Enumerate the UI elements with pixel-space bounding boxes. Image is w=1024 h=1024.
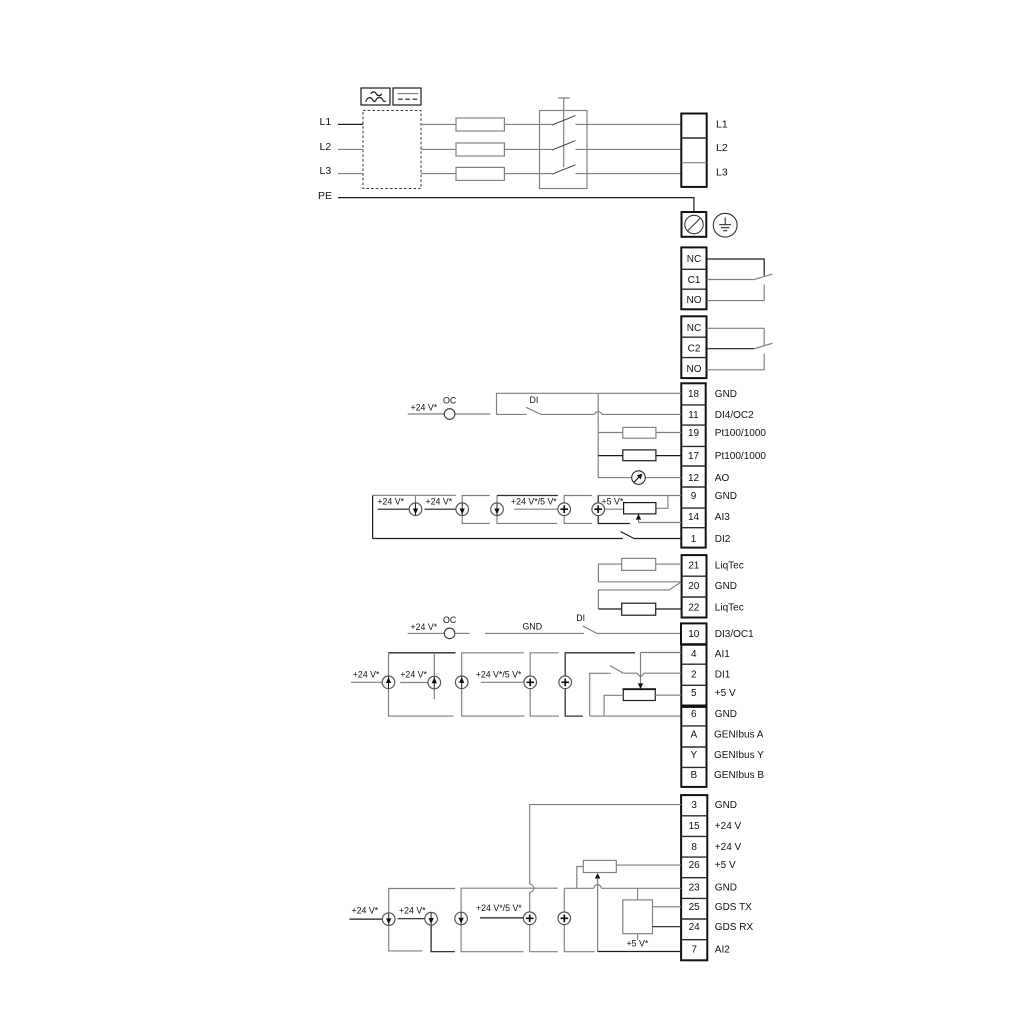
svg-text:+5 V: +5 V [715, 860, 736, 871]
svg-text:21: 21 [688, 560, 700, 571]
svg-text:GND: GND [715, 491, 737, 502]
svg-text:DI4/OC2: DI4/OC2 [715, 410, 754, 421]
svg-text:GDS TX: GDS TX [715, 902, 752, 913]
svg-text:GND: GND [715, 882, 737, 893]
svg-text:+5 V*: +5 V* [627, 939, 649, 949]
svg-text:+24 V: +24 V [715, 821, 742, 832]
svg-text:GENIbus Y: GENIbus Y [714, 750, 764, 761]
svg-text:+24 V*: +24 V* [411, 403, 438, 413]
svg-text:+24 V*/5 V*: +24 V*/5 V* [476, 903, 522, 913]
svg-text:GND: GND [523, 622, 543, 632]
svg-text:11: 11 [688, 410, 699, 421]
svg-text:AI1: AI1 [715, 649, 730, 660]
svg-text:LiqTec: LiqTec [715, 603, 744, 614]
svg-text:AI2: AI2 [715, 945, 730, 956]
svg-text:24: 24 [689, 922, 701, 933]
svg-text:DI: DI [530, 395, 539, 405]
svg-text:GENIbus B: GENIbus B [714, 770, 764, 781]
svg-text:1: 1 [691, 534, 697, 545]
svg-text:14: 14 [688, 512, 700, 523]
svg-text:GND: GND [715, 709, 737, 720]
svg-text:25: 25 [689, 902, 701, 913]
svg-text:4: 4 [691, 649, 697, 660]
svg-text:+24 V*: +24 V* [399, 906, 426, 916]
svg-text:GND: GND [715, 389, 737, 400]
svg-text:+5 V: +5 V [715, 688, 736, 699]
svg-text:B: B [690, 770, 697, 781]
svg-text:+24 V*: +24 V* [400, 670, 427, 680]
svg-text:19: 19 [688, 428, 700, 439]
svg-text:Pt100/1000: Pt100/1000 [715, 428, 767, 439]
svg-text:+24 V: +24 V [715, 842, 742, 853]
svg-text:AI3: AI3 [715, 512, 730, 523]
svg-text:Pt100/1000: Pt100/1000 [715, 451, 767, 462]
svg-text:26: 26 [689, 860, 701, 871]
svg-text:DI3/OC1: DI3/OC1 [715, 629, 754, 640]
svg-text:23: 23 [689, 882, 701, 893]
svg-text:+5 V*: +5 V* [602, 496, 624, 506]
svg-text:15: 15 [689, 821, 701, 832]
svg-text:DI1: DI1 [715, 669, 731, 680]
svg-text:DI: DI [576, 613, 585, 623]
svg-text:LiqTec: LiqTec [715, 560, 744, 571]
svg-text:3: 3 [691, 800, 697, 811]
svg-text:5: 5 [691, 688, 697, 699]
svg-text:+24 V*/5 V*: +24 V*/5 V* [511, 496, 557, 506]
svg-text:A: A [690, 729, 697, 740]
svg-text:17: 17 [688, 451, 700, 462]
svg-text:GND: GND [715, 581, 737, 592]
svg-text:OC: OC [443, 615, 457, 625]
svg-text:L2: L2 [716, 142, 728, 154]
svg-text:NO: NO [687, 364, 702, 375]
svg-text:NO: NO [687, 295, 702, 306]
svg-text:GDS RX: GDS RX [715, 922, 754, 933]
svg-text:22: 22 [688, 603, 700, 614]
svg-text:6: 6 [691, 709, 697, 720]
svg-text:+24 V*: +24 V* [426, 496, 453, 506]
svg-text:GENIbus A: GENIbus A [714, 729, 764, 740]
svg-text:GND: GND [715, 800, 737, 811]
svg-text:10: 10 [688, 629, 700, 640]
svg-text:12: 12 [688, 473, 700, 484]
svg-text:+24 V*: +24 V* [411, 622, 438, 632]
svg-text:+24 V*: +24 V* [377, 496, 404, 506]
svg-text:PE: PE [318, 190, 332, 202]
svg-text:20: 20 [688, 581, 700, 592]
svg-text:NC: NC [687, 323, 701, 334]
svg-text:L3: L3 [320, 165, 332, 177]
svg-text:L1: L1 [320, 116, 332, 128]
svg-text:+24 V*: +24 V* [353, 670, 380, 680]
svg-text:C2: C2 [688, 344, 701, 355]
svg-text:9: 9 [691, 491, 697, 502]
svg-text:Y: Y [690, 750, 697, 761]
svg-text:L1: L1 [716, 119, 728, 131]
svg-text:18: 18 [688, 389, 700, 400]
svg-text:NC: NC [687, 254, 701, 265]
svg-text:L3: L3 [716, 166, 728, 178]
svg-text:C1: C1 [688, 275, 701, 286]
svg-text:8: 8 [691, 842, 697, 853]
svg-text:7: 7 [691, 945, 697, 956]
svg-text:2: 2 [691, 669, 697, 680]
svg-text:DI2: DI2 [715, 534, 731, 545]
svg-text:+24 V*: +24 V* [352, 906, 379, 916]
svg-text:L2: L2 [320, 141, 332, 153]
svg-text:AO: AO [715, 473, 730, 484]
svg-text:+24 V*/5 V*: +24 V*/5 V* [476, 670, 522, 680]
svg-text:OC: OC [443, 396, 457, 406]
